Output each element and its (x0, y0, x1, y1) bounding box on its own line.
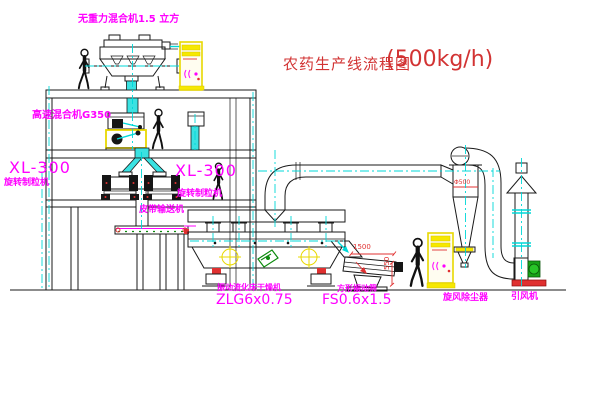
rotary-granulator-left (101, 172, 139, 200)
label-dryer-model: ZLG6x0.75 (216, 293, 293, 307)
control-cabinet-bottom (427, 233, 455, 288)
y-splitter-chute (122, 148, 165, 172)
gravity-free-mixer (84, 35, 182, 90)
feeder-unit (188, 112, 204, 150)
label-cyclone: 旋风除尘器 (443, 294, 488, 303)
label-granulator-left-name: 旋转制粒机 (4, 179, 49, 188)
induced-draft-fan (512, 258, 546, 286)
exhaust-duct (265, 162, 453, 210)
flow-diagram-canvas: 农药生产线流程图 (500kg/h) 无重力混合机1.5 立方 高速混合机G35… (0, 0, 600, 403)
label-granulator-right-model: XL-300 (175, 163, 237, 179)
label-high-speed-mixer: 高速混合机G350 (32, 111, 111, 121)
high-speed-mixer (106, 113, 146, 150)
worker-figure (411, 239, 423, 286)
dim-screen-length: 1500 (353, 244, 371, 251)
label-granulator-right-name: 旋转制粒机 (177, 190, 222, 199)
page-title-capacity: (500kg/h) (386, 49, 493, 71)
vibration-motor (258, 250, 278, 267)
worker-figure (79, 49, 89, 88)
label-belt-conveyor: 皮带输送机 (139, 206, 184, 215)
label-granulator-left-model: XL-300 (9, 160, 71, 176)
dim-screen-height: 550 (384, 257, 391, 270)
fluid-bed-dryer (184, 210, 345, 286)
worker-figure (153, 109, 163, 148)
label-fan: 引风机 (511, 293, 538, 302)
cyclone-outlet-pipe (464, 148, 514, 279)
control-cabinet-top (179, 42, 204, 90)
label-screen-model: FS0.6x1.5 (322, 293, 392, 307)
label-gravity-free-mixer: 无重力混合机1.5 立方 (78, 15, 179, 25)
dim-cyclone-diameter: Φ500 (454, 180, 470, 186)
belt-conveyor (115, 226, 188, 234)
label-dryer-name: 振动流化床干燥机 (217, 284, 281, 292)
